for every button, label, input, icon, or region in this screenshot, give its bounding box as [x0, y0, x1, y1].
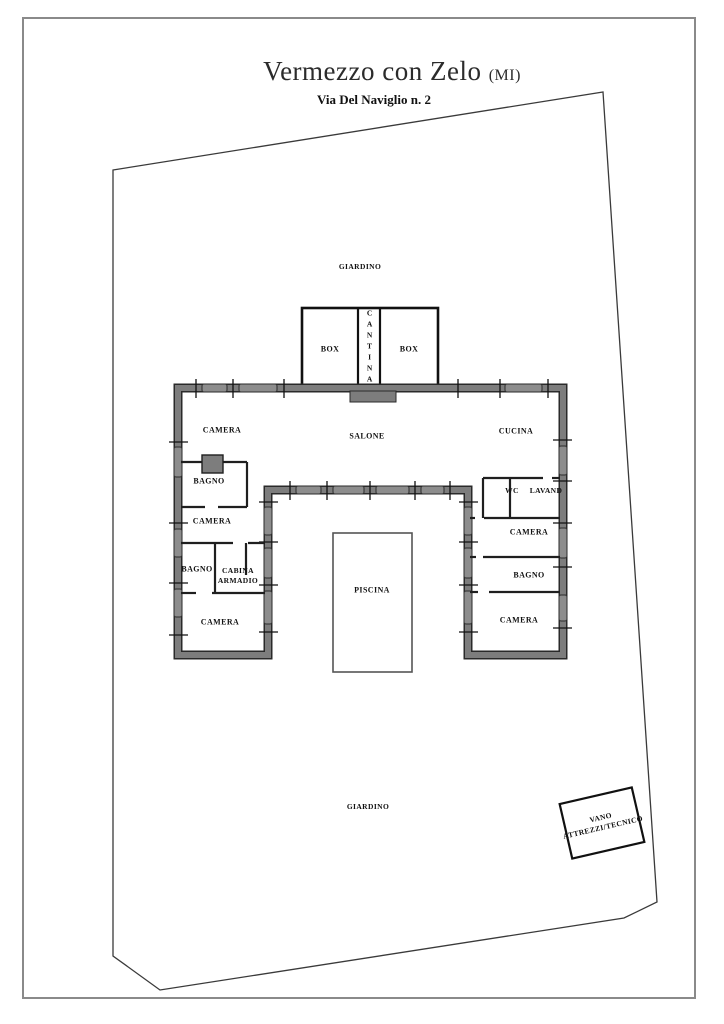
- pool-outline: [333, 533, 412, 672]
- tool-shed-outline: [560, 787, 645, 858]
- floor-plan-drawing: [0, 0, 724, 1024]
- wall-fixture-box: [202, 455, 223, 473]
- entrance-step: [350, 391, 396, 402]
- garage-cantina-block: [302, 308, 438, 386]
